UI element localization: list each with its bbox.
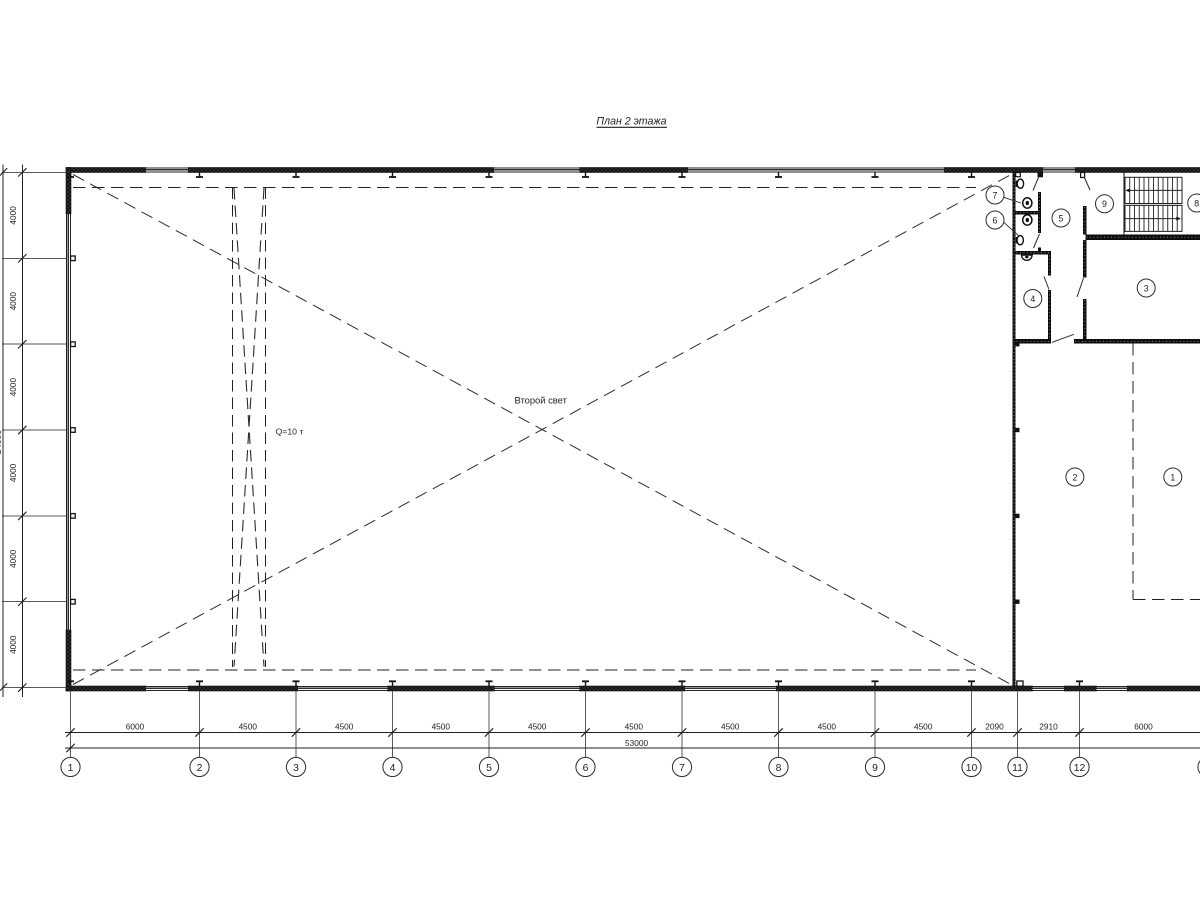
svg-text:7: 7 (993, 190, 998, 200)
svg-text:2090: 2090 (985, 722, 1004, 732)
svg-text:9: 9 (872, 763, 878, 774)
svg-text:Q=10 т: Q=10 т (276, 426, 304, 436)
svg-text:3: 3 (293, 763, 299, 774)
svg-text:6: 6 (583, 763, 589, 774)
svg-text:4500: 4500 (818, 722, 837, 732)
svg-text:4000: 4000 (8, 463, 18, 482)
svg-text:2: 2 (197, 763, 203, 774)
svg-text:6: 6 (993, 215, 998, 225)
svg-text:2: 2 (1072, 472, 1077, 482)
svg-text:24000: 24000 (0, 430, 3, 454)
svg-text:5: 5 (486, 763, 492, 774)
svg-text:4000: 4000 (8, 635, 18, 654)
svg-text:9: 9 (1102, 199, 1107, 209)
svg-text:4000: 4000 (8, 292, 18, 311)
svg-text:4500: 4500 (239, 722, 258, 732)
svg-text:4: 4 (390, 763, 396, 774)
svg-text:1: 1 (1170, 472, 1175, 482)
svg-text:4000: 4000 (8, 206, 18, 225)
svg-text:4500: 4500 (432, 722, 451, 732)
svg-text:11: 11 (1012, 763, 1023, 774)
svg-text:8: 8 (776, 763, 782, 774)
svg-text:10: 10 (966, 763, 978, 774)
svg-text:4500: 4500 (335, 722, 354, 732)
svg-text:6000: 6000 (1134, 722, 1153, 732)
svg-text:7: 7 (679, 763, 685, 774)
svg-text:План 2 этажа: План 2 этажа (596, 115, 666, 127)
svg-text:53000: 53000 (625, 738, 648, 748)
svg-text:4500: 4500 (625, 722, 644, 732)
svg-text:Второй свет: Второй свет (515, 395, 568, 406)
svg-text:4500: 4500 (528, 722, 547, 732)
svg-text:1: 1 (68, 763, 74, 774)
svg-text:4500: 4500 (721, 722, 740, 732)
svg-text:3: 3 (1144, 283, 1149, 293)
svg-text:4000: 4000 (8, 549, 18, 568)
svg-text:2910: 2910 (1039, 722, 1058, 732)
svg-text:8: 8 (1194, 198, 1199, 208)
svg-text:6000: 6000 (126, 722, 145, 732)
svg-text:4: 4 (1030, 294, 1035, 304)
svg-text:4500: 4500 (914, 722, 933, 732)
svg-text:4000: 4000 (8, 377, 18, 396)
svg-text:12: 12 (1074, 763, 1086, 774)
svg-text:5: 5 (1059, 213, 1064, 223)
